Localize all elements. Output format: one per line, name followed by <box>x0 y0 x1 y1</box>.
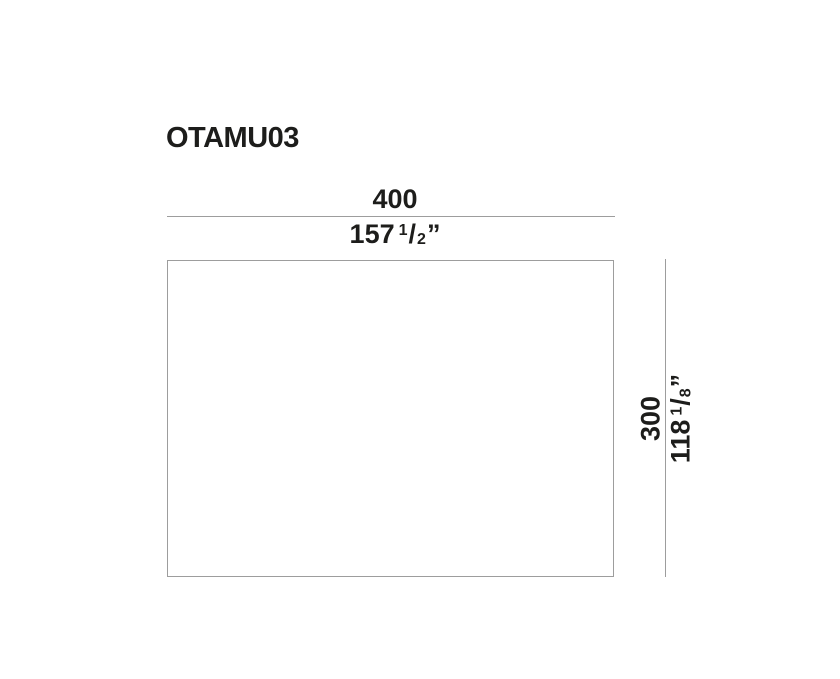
height-inch-mark: ” <box>666 374 696 388</box>
width-imperial-whole: 157 <box>350 219 395 249</box>
width-imperial-label: 1571/2” <box>167 221 623 248</box>
width-metric-label: 400 <box>167 186 623 213</box>
width-fraction-numerator: 1 <box>399 222 408 239</box>
product-outline <box>167 260 614 577</box>
width-inch-mark: ” <box>427 219 441 249</box>
height-metric-label: 300 <box>638 259 665 579</box>
width-fraction-slash: / <box>409 219 417 249</box>
height-imperial-whole: 118 <box>666 420 696 464</box>
technical-drawing: OTAMU03 400 1571/2” 300 1181/8” <box>0 0 840 679</box>
width-fraction-denominator: 2 <box>417 231 426 248</box>
height-imperial-label: 1181/8” <box>668 259 695 579</box>
width-dimension-line <box>167 216 615 217</box>
height-fraction-slash: / <box>666 398 696 406</box>
product-code: OTAMU03 <box>166 124 299 153</box>
height-fraction-denominator: 8 <box>678 388 695 397</box>
height-fraction-numerator: 1 <box>669 407 686 416</box>
